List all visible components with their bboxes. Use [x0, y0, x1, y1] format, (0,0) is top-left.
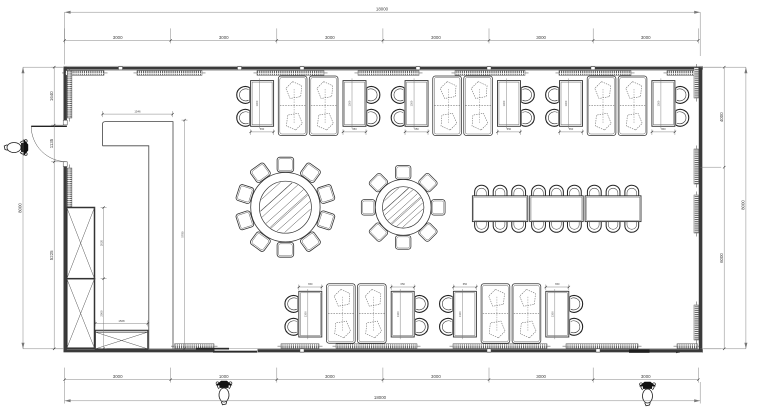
svg-text:650: 650: [308, 282, 313, 286]
svg-text:650: 650: [555, 282, 560, 286]
svg-text:5780: 5780: [180, 231, 184, 238]
svg-text:3000: 3000: [641, 35, 651, 40]
svg-text:1546: 1546: [134, 110, 141, 114]
svg-text:4000: 4000: [719, 112, 724, 122]
svg-text:3000: 3000: [536, 35, 546, 40]
svg-text:650: 650: [463, 282, 468, 286]
svg-text:2000: 2000: [99, 310, 103, 317]
svg-text:2020: 2020: [99, 239, 103, 246]
svg-text:1000: 1000: [219, 374, 229, 379]
svg-text:650: 650: [401, 282, 406, 286]
svg-text:650: 650: [352, 127, 357, 131]
svg-text:3000: 3000: [219, 35, 229, 40]
svg-text:650: 650: [507, 127, 512, 131]
svg-text:1568: 1568: [118, 319, 125, 323]
svg-text:650: 650: [260, 127, 265, 131]
svg-text:3000: 3000: [431, 374, 441, 379]
svg-text:3000: 3000: [325, 35, 335, 40]
svg-text:3000: 3000: [431, 35, 441, 40]
svg-text:3000: 3000: [113, 374, 123, 379]
svg-text:6000: 6000: [719, 253, 724, 263]
svg-text:8000: 8000: [740, 200, 745, 210]
svg-text:650: 650: [414, 127, 419, 131]
svg-text:1135: 1135: [49, 138, 54, 148]
svg-text:18000: 18000: [374, 395, 387, 400]
svg-text:18000: 18000: [376, 7, 389, 12]
svg-text:1640: 1640: [49, 91, 54, 101]
svg-text:5225: 5225: [49, 250, 54, 260]
svg-text:650: 650: [661, 127, 666, 131]
svg-text:3000: 3000: [641, 374, 651, 379]
svg-text:8000: 8000: [17, 203, 22, 213]
svg-text:650: 650: [569, 127, 574, 131]
svg-text:3000: 3000: [325, 374, 335, 379]
svg-text:3000: 3000: [536, 374, 546, 379]
svg-text:3000: 3000: [113, 35, 123, 40]
